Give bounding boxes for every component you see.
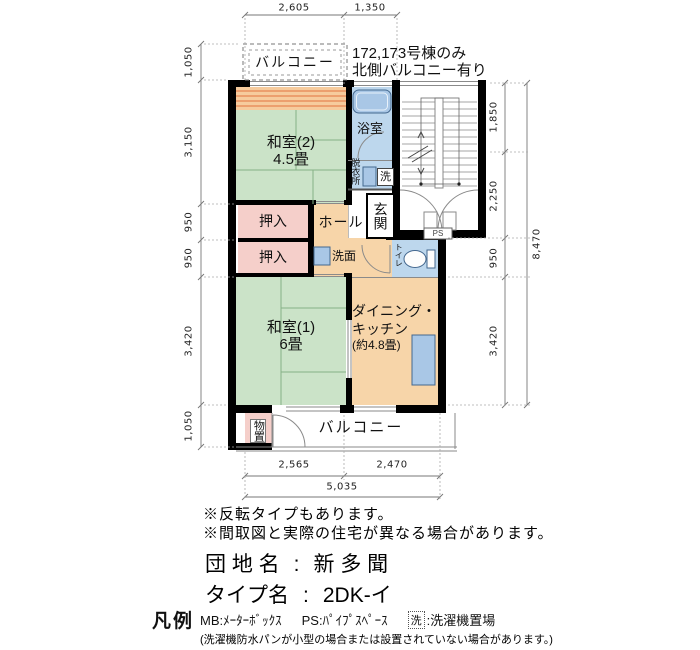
dim-right-total: 8,470	[532, 228, 543, 259]
staircase	[402, 98, 477, 188]
oshiire-upper-label: 押入	[238, 211, 308, 231]
estate-type-value: 2DK-イ	[323, 579, 392, 609]
note-plan-differs: ※間取図と実際の住宅が異なる場合があります。	[203, 522, 554, 543]
toilet-label: トイレ	[394, 243, 403, 275]
washitsu2-label: 和室(2) 4.5畳	[236, 118, 346, 184]
washitsu1-size: 6畳	[279, 336, 302, 353]
ps-label: PS	[424, 228, 452, 239]
note-reverse-type: ※反転タイプもあります。	[203, 503, 394, 524]
dim-left-3: 950	[184, 212, 195, 233]
dim-left-4: 950	[184, 248, 195, 269]
storage-label: 物置	[250, 419, 267, 443]
senmen-label: 洗面	[332, 250, 356, 264]
genkan-label: 玄関	[372, 202, 388, 230]
washitsu2-veranda-strip	[236, 87, 346, 110]
dk-label: ダイニング・ キッチン (約4.8畳)	[352, 303, 438, 353]
dim-right-1: 1,850	[489, 101, 500, 132]
washitsu1-name: 和室(1)	[267, 319, 315, 336]
dim-left-1: 1,050	[184, 46, 195, 77]
estate-name-line: 団 地 名 : 新 多 聞	[205, 548, 388, 578]
estate-name-value: 新 多 聞	[314, 548, 389, 578]
washitsu2-size: 4.5畳	[273, 151, 309, 168]
dim-right-4: 3,420	[489, 325, 500, 356]
legend-title: 凡例	[152, 606, 194, 633]
dim-top-2: 1,350	[354, 3, 385, 14]
storage-label-box: 物置	[249, 416, 267, 445]
dim-left-2: 3,150	[184, 126, 195, 157]
dk-name-line1: ダイニング・	[352, 303, 438, 319]
estate-name-label: 団 地 名	[205, 548, 280, 578]
balcony-top-label: バルコニー	[243, 44, 347, 80]
dim-left-5: 3,420	[184, 325, 195, 356]
estate-type-label: タイプ名	[205, 579, 289, 609]
dim-right-2: 2,250	[489, 180, 500, 211]
washitsu1-label: 和室(1) 6畳	[236, 308, 346, 364]
estate-name-sep: :	[294, 553, 300, 577]
dk-name-line2: キッチン	[352, 321, 438, 337]
building-note: 172,173号棟のみ 北側バルコニー有り	[352, 45, 487, 80]
legend-washer-label: :洗濯機置場	[427, 610, 496, 629]
washer-mark-box: 洗	[377, 168, 394, 186]
estate-type-sep: :	[303, 584, 309, 608]
dim-top-1: 2,605	[278, 3, 309, 14]
legend-mb: MB:ﾒｰﾀｰﾎﾞｯｸｽ	[200, 610, 282, 629]
dressing-label: 脱衣所	[350, 158, 360, 192]
bath-label: 浴室	[348, 120, 392, 138]
legend-note: (洗濯機防水パンが小型の場合または設置されていない場合があります。)	[200, 631, 553, 647]
estate-type-line: タイプ名 : 2DK-イ	[205, 579, 392, 609]
oshiire-lower-label: 押入	[238, 247, 308, 267]
dk-size: (約4.8畳)	[352, 339, 438, 353]
legend-row: MB:ﾒｰﾀｰﾎﾞｯｸｽ PS:ﾊﾟｲﾌﾟｽﾍﾟｰｽ 洗 :洗濯機置場	[200, 610, 495, 629]
hall-label: ホール	[312, 212, 370, 232]
building-note-line2: 北側バルコニー有り	[352, 62, 487, 79]
legend-washer-mark: 洗	[408, 611, 425, 629]
genkan-label-box: 玄関	[366, 193, 395, 239]
legend-ps: PS:ﾊﾟｲﾌﾟｽﾍﾟｰｽ	[302, 610, 388, 629]
washitsu2-name: 和室(2)	[267, 134, 315, 151]
dim-bottom-2: 2,470	[376, 460, 407, 471]
dim-bottom-total: 5,035	[326, 482, 357, 493]
dim-bottom-1: 2,565	[278, 460, 309, 471]
balcony-bottom-label: バルコニー	[300, 419, 422, 437]
floorplan-page: バルコニー 172,173号棟のみ 北側バルコニー有り 和室(2) 4.5畳 浴…	[0, 0, 700, 650]
building-note-line1: 172,173号棟のみ	[352, 45, 487, 62]
dim-right-3: 950	[489, 248, 500, 269]
dim-left-6: 1,050	[184, 410, 195, 441]
